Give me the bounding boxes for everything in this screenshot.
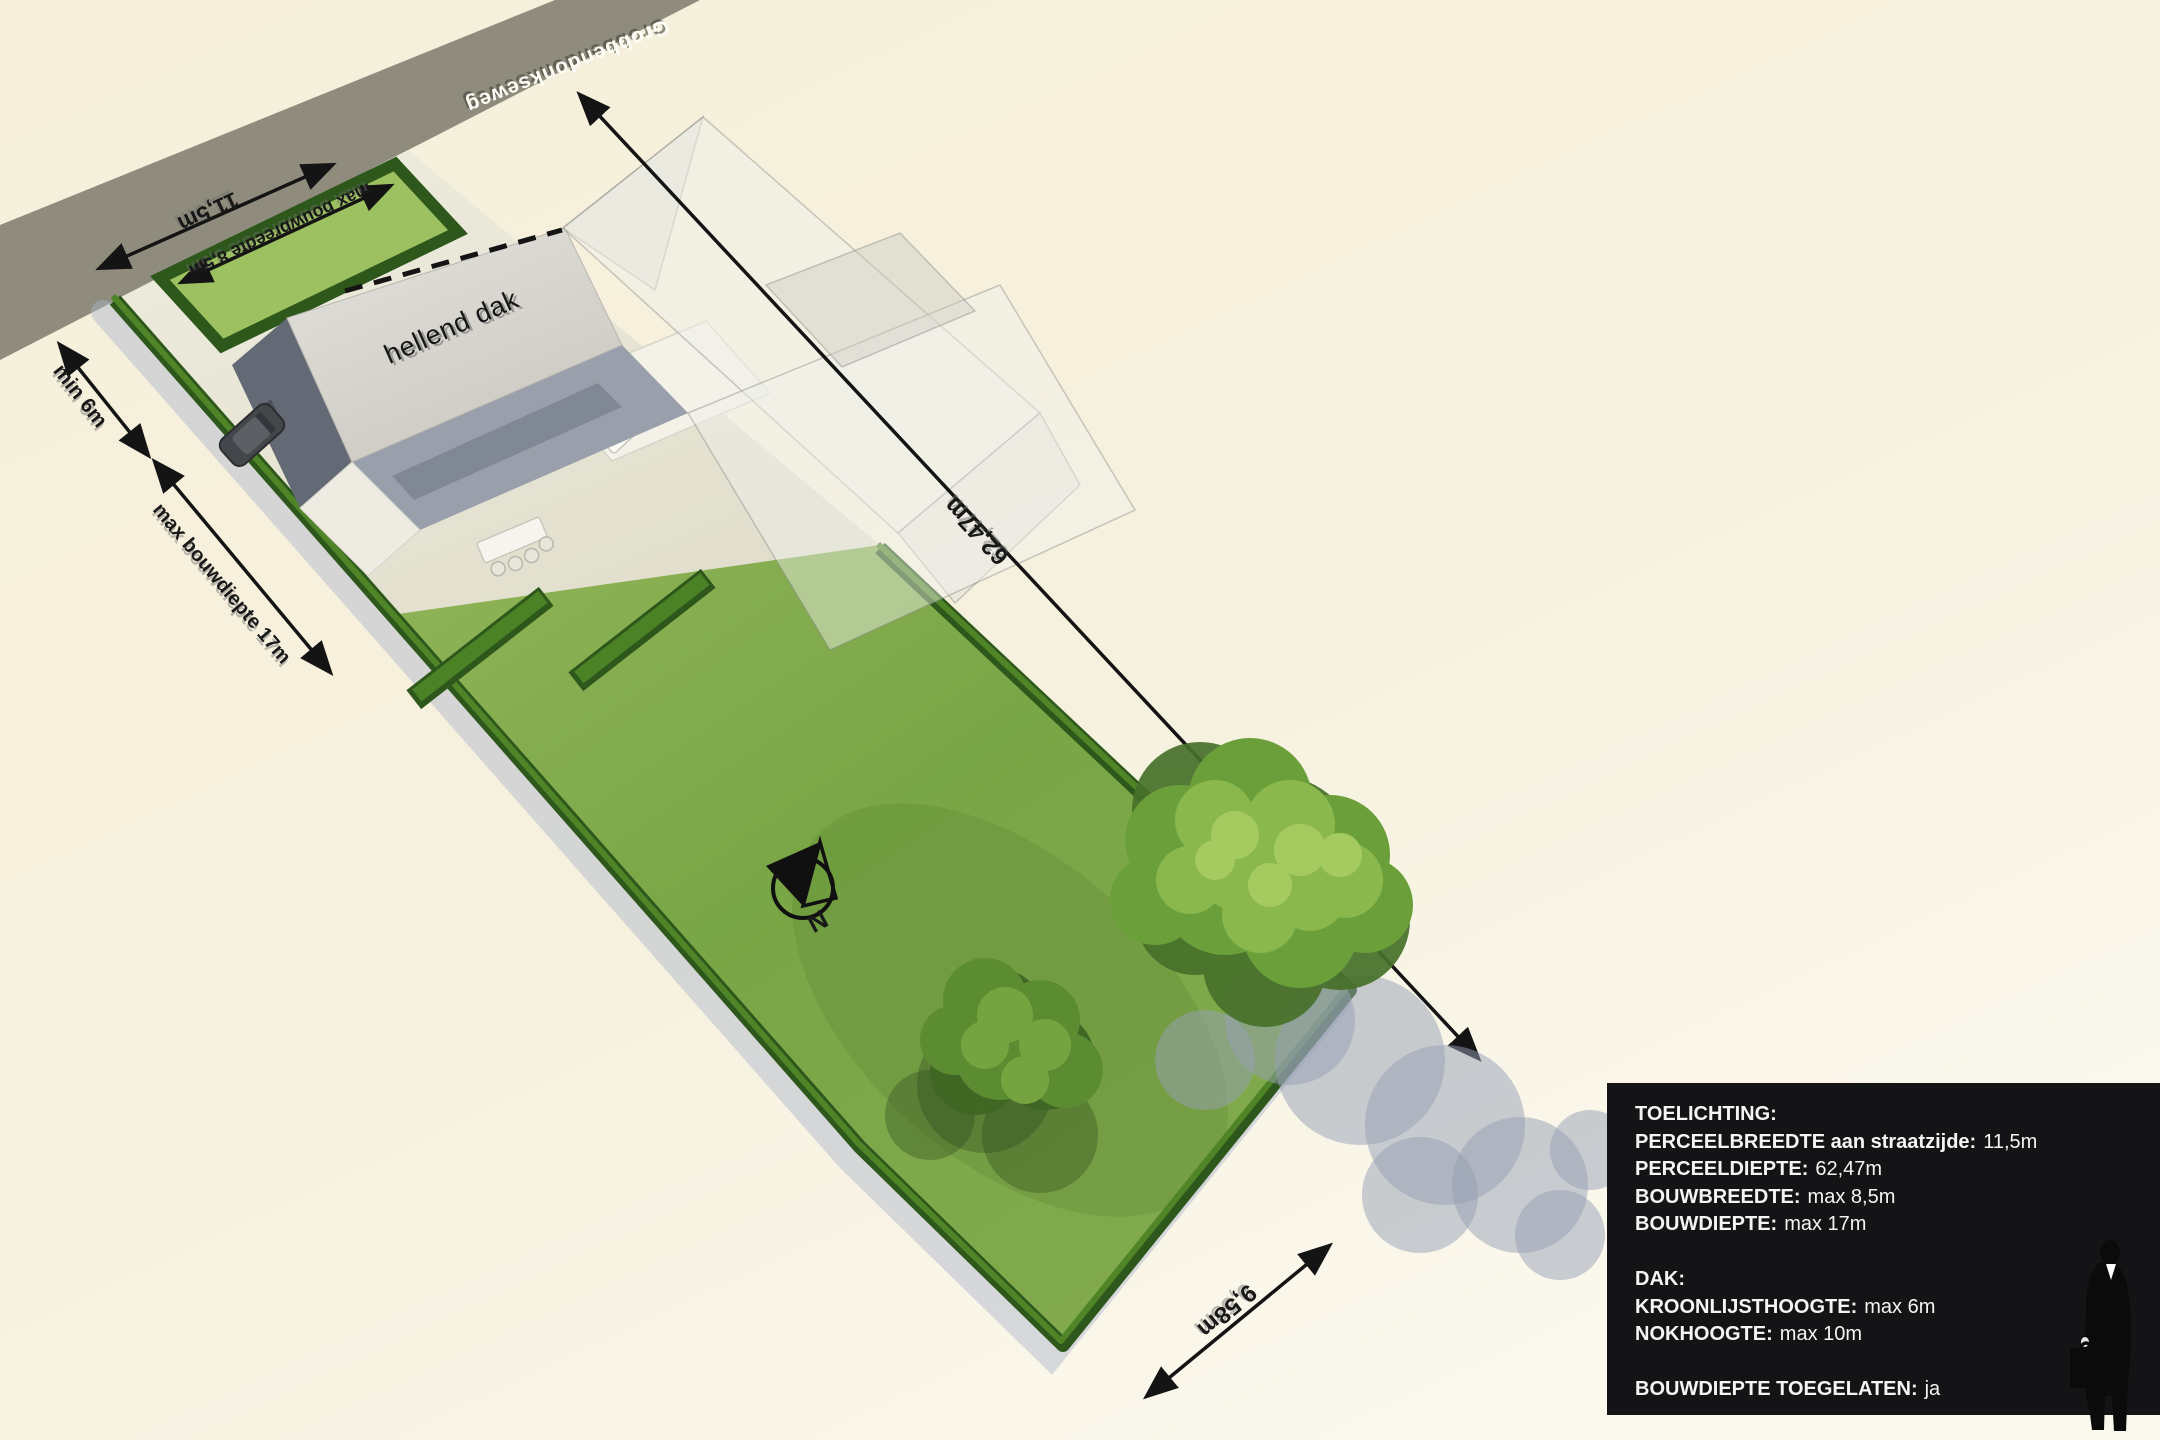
info-value: max 6m xyxy=(1864,1296,1935,1318)
info-label: PERCEELDIEPTE: xyxy=(1635,1158,1808,1180)
person-silhouette xyxy=(2066,1228,2156,1440)
info-label: DAK: xyxy=(1635,1268,1685,1290)
info-value: 11,5m xyxy=(1983,1131,2037,1153)
briefcase xyxy=(2070,1348,2102,1388)
info-label: BOUWDIEPTE: xyxy=(1635,1213,1777,1235)
info-value: max 10m xyxy=(1780,1323,1862,1345)
info-label: NOKHOOGTE: xyxy=(1635,1323,1773,1345)
info-line-bouwbreedte: BOUWBREEDTE:max 8,5m xyxy=(1635,1184,2160,1212)
info-label: BOUWBREEDTE: xyxy=(1635,1186,1801,1208)
info-line-title: TOELICHTING: xyxy=(1635,1101,2160,1129)
site-plan-render: Grobbendonkseweg Grobbendonkseweg xyxy=(0,0,2160,1440)
info-value: max 17m xyxy=(1784,1213,1866,1235)
info-line-perceeldiepte: PERCEELDIEPTE:62,47m xyxy=(1635,1156,2160,1184)
info-value: ja xyxy=(1925,1378,1941,1400)
info-label: TOELICHTING: xyxy=(1635,1103,1777,1125)
info-line-perceelbreedte: PERCEELBREEDTE aan straatzijde:11,5m xyxy=(1635,1129,2160,1157)
info-label: KROONLIJSTHOOGTE: xyxy=(1635,1296,1857,1318)
info-label: PERCEELBREEDTE aan straatzijde: xyxy=(1635,1131,1976,1153)
info-value: max 8,5m xyxy=(1808,1186,1896,1208)
info-value: 62,47m xyxy=(1815,1158,1882,1180)
info-label: BOUWDIEPTE TOEGELATEN: xyxy=(1635,1378,1918,1400)
